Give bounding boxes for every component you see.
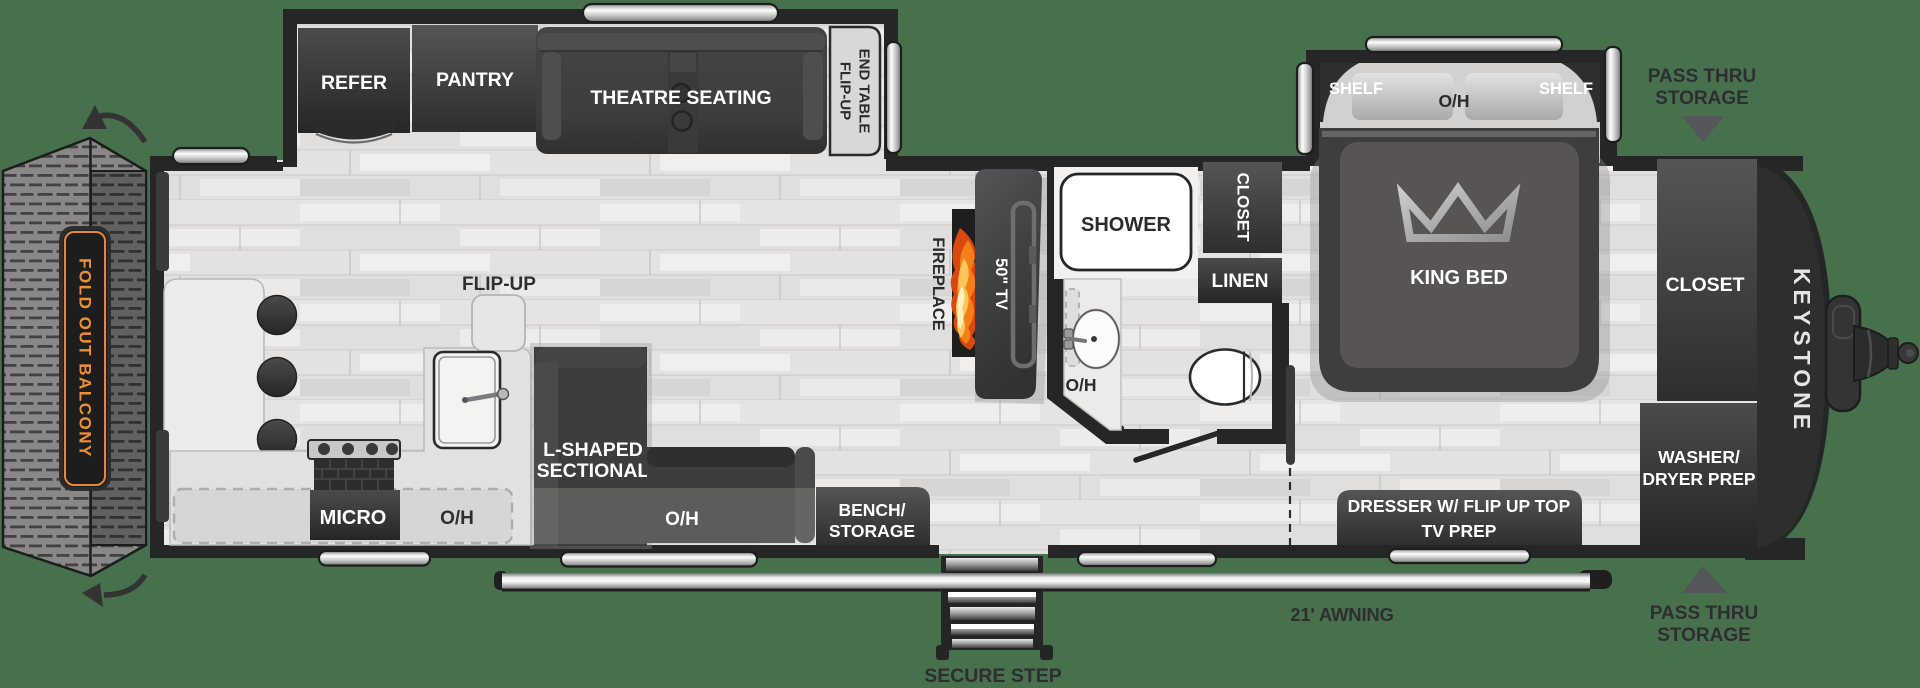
svg-text:CLOSET: CLOSET (1234, 173, 1253, 243)
svg-text:FLIP-UP: FLIP-UP (837, 62, 854, 120)
svg-text:PASS THRU: PASS THRU (1648, 66, 1756, 87)
svg-text:SHELF: SHELF (1539, 80, 1593, 98)
svg-text:BENCH/: BENCH/ (838, 500, 905, 520)
svg-text:WASHER/: WASHER/ (1658, 447, 1740, 467)
svg-text:STORAGE: STORAGE (1657, 625, 1751, 646)
svg-text:SHOWER: SHOWER (1081, 214, 1172, 236)
svg-text:O/H: O/H (440, 508, 474, 529)
svg-text:O/H: O/H (1065, 375, 1096, 395)
svg-text:STORAGE: STORAGE (1655, 88, 1749, 109)
svg-text:DRESSER W/ FLIP UP TOP: DRESSER W/ FLIP UP TOP (1348, 496, 1571, 516)
svg-text:SECURE STEP: SECURE STEP (924, 665, 1062, 687)
svg-text:REFER: REFER (321, 72, 387, 94)
svg-text:KING BED: KING BED (1410, 267, 1508, 289)
svg-text:FIREPLACE: FIREPLACE (929, 237, 947, 331)
svg-text:END TABLE: END TABLE (856, 49, 873, 134)
svg-text:SHELF: SHELF (1329, 80, 1383, 98)
svg-text:O/H: O/H (665, 509, 699, 530)
svg-text:PASS THRU: PASS THRU (1650, 603, 1758, 624)
svg-text:PANTRY: PANTRY (436, 69, 514, 91)
svg-text:TV PREP: TV PREP (1422, 521, 1497, 541)
svg-text:KEYSTONE: KEYSTONE (1789, 268, 1815, 434)
svg-text:50" TV: 50" TV (992, 258, 1010, 310)
svg-text:21' AWNING: 21' AWNING (1290, 604, 1393, 625)
svg-text:O/H: O/H (1438, 91, 1469, 111)
svg-text:STORAGE: STORAGE (829, 521, 915, 541)
svg-text:THEATRE SEATING: THEATRE SEATING (590, 87, 771, 109)
svg-text:MICRO: MICRO (320, 507, 387, 529)
svg-text:FOLD OUT BALCONY: FOLD OUT BALCONY (76, 258, 95, 458)
svg-text:CLOSET: CLOSET (1665, 274, 1744, 296)
svg-text:LINEN: LINEN (1212, 271, 1269, 292)
svg-text:FLIP-UP: FLIP-UP (462, 274, 536, 295)
svg-text:L-SHAPED: L-SHAPED (543, 439, 643, 461)
svg-text:SECTIONAL: SECTIONAL (537, 460, 650, 482)
svg-text:DRYER PREP: DRYER PREP (1642, 469, 1755, 489)
